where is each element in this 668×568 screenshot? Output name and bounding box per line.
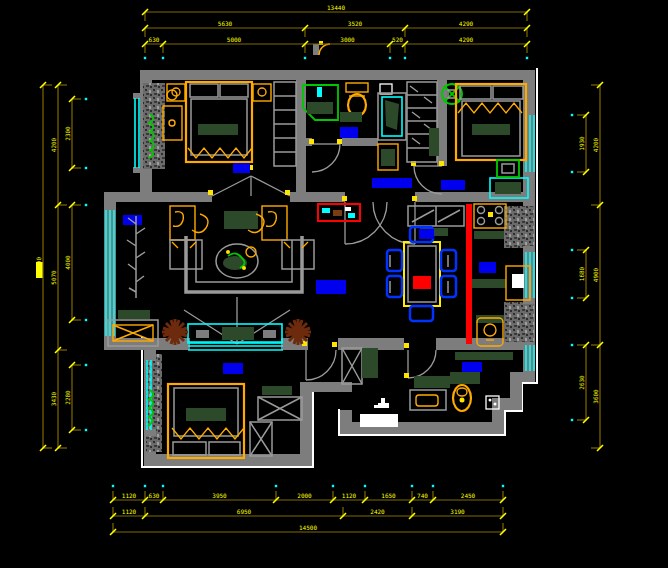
floor-plan-drawing: 13440 14500 12700 5630352042906305000300… — [0, 0, 668, 568]
shoe-bench — [414, 376, 450, 388]
window-living-west — [104, 204, 116, 342]
counter-top — [474, 231, 504, 239]
dim-total-left: 12700 — [35, 257, 42, 275]
dimension-value: 2000 — [297, 492, 312, 499]
dimension-value: 1120 — [122, 492, 137, 499]
room-label-bathroom — [340, 127, 358, 138]
dimension-value: 2300 — [64, 126, 71, 141]
room-label-hall — [372, 178, 412, 188]
bath-shelf — [340, 112, 362, 122]
dimension-value: 2450 — [461, 492, 476, 499]
dimension-value: 1680 — [578, 266, 585, 281]
dimension-value: 2280 — [64, 390, 71, 405]
dimension-value: 630 — [149, 492, 160, 499]
dimension-value: 6950 — [237, 508, 252, 515]
dimension-value: 3950 — [212, 492, 227, 499]
dimension-value: 520 — [392, 36, 403, 43]
dimension-value: 5000 — [227, 36, 242, 43]
room-label-bedroom2 — [441, 180, 465, 190]
dimension-value: 5630 — [218, 20, 233, 27]
dim-total-top: 13440 — [327, 4, 345, 11]
dimension-value: 3000 — [340, 36, 355, 43]
room-label-entry — [462, 362, 482, 372]
room-label-kitchen — [479, 262, 496, 273]
room-label-bedroom1 — [233, 163, 250, 173]
dimension-value: 740 — [417, 492, 428, 499]
room-label-living — [316, 280, 346, 294]
dimension-value: 1650 — [381, 492, 396, 499]
dimension-value: 4200 — [50, 137, 57, 152]
dimension-value: 2420 — [370, 508, 385, 515]
accent-wall-line — [466, 204, 472, 344]
dimension-value: 4290 — [459, 20, 474, 27]
counter-top — [472, 279, 506, 288]
room-label-dining — [419, 229, 434, 239]
wardrobe-shelf — [429, 128, 439, 156]
dimension-value: 3600 — [592, 389, 599, 404]
dimension-value: 3430 — [50, 391, 57, 406]
dimension-value: 5070 — [50, 270, 57, 285]
dimension-value: 4200 — [592, 137, 599, 152]
room-label-bedroom3 — [223, 363, 243, 374]
dimension-value: 4900 — [592, 267, 599, 282]
dimension-value: 1120 — [122, 508, 137, 515]
dimension-value: 4000 — [64, 255, 71, 270]
wall-cabinet — [455, 352, 513, 360]
tv-icon — [222, 327, 254, 340]
dimension-value: 630 — [149, 36, 160, 43]
dimension-value: 3520 — [348, 20, 363, 27]
dimension-value: 3190 — [450, 508, 465, 515]
white-label-block — [360, 414, 398, 427]
dimension-value: 1930 — [578, 136, 585, 151]
wall-label — [123, 215, 142, 225]
dim-total-bottom: 14500 — [299, 524, 317, 531]
counter-top — [476, 315, 504, 323]
cad-floor-plan-canvas: 13440 14500 12700 5630352042906305000300… — [0, 0, 668, 568]
shoe-bench — [450, 372, 480, 384]
dimension-value: 1120 — [342, 492, 357, 499]
dimension-value: 2630 — [578, 375, 585, 390]
dimension-value: 4290 — [459, 36, 474, 43]
